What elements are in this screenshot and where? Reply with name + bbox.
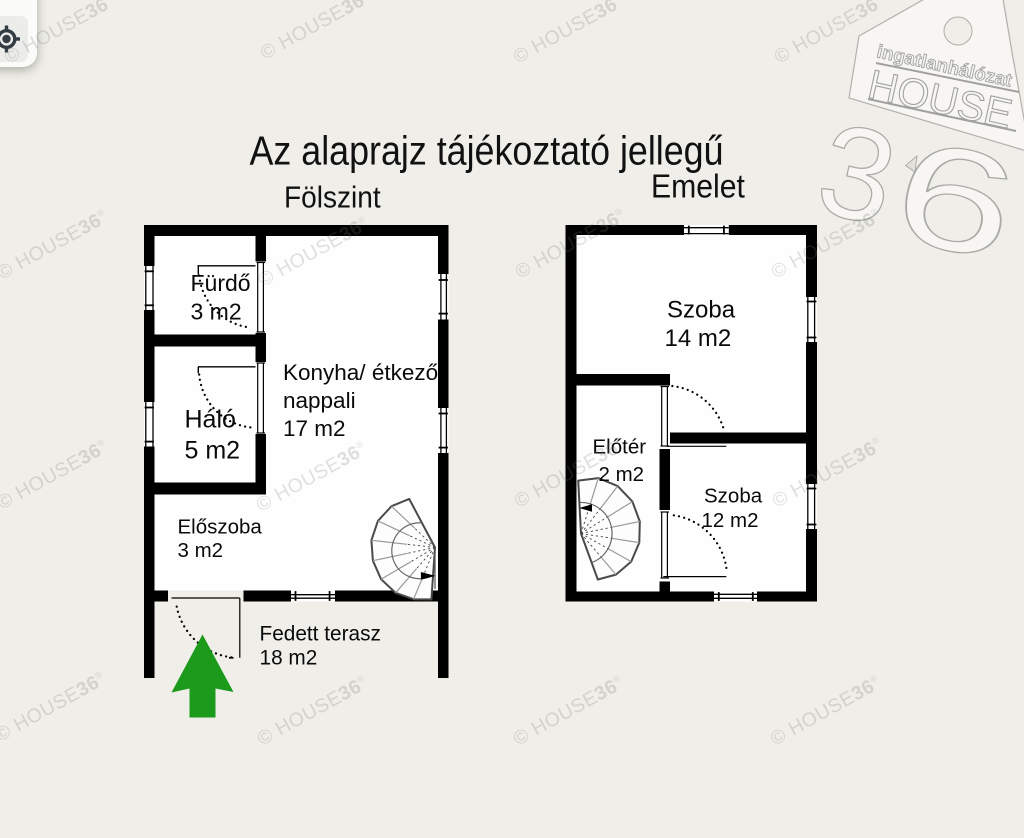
- svg-text:18 m2: 18 m2: [260, 647, 318, 670]
- svg-text:Fürdő: Fürdő: [191, 270, 251, 296]
- svg-text:Előszoba: Előszoba: [178, 516, 263, 539]
- svg-text:Emelet: Emelet: [651, 167, 745, 205]
- svg-text:Konyha/ étkező: Konyha/ étkező: [283, 360, 438, 385]
- svg-text:© HOUSE36®: © HOUSE36®: [257, 0, 375, 64]
- svg-text:17 m2: 17 m2: [283, 416, 346, 441]
- svg-text:Szoba: Szoba: [667, 297, 736, 324]
- svg-text:© HOUSE36®: © HOUSE36®: [767, 672, 885, 751]
- svg-text:3 m2: 3 m2: [178, 539, 224, 562]
- svg-text:Fölszint: Fölszint: [284, 180, 381, 214]
- svg-text:5 m2: 5 m2: [185, 437, 241, 465]
- svg-text:3 m2: 3 m2: [191, 299, 242, 325]
- svg-text:Háló: Háló: [185, 406, 236, 434]
- svg-text:2 m2: 2 m2: [599, 463, 645, 486]
- svg-text:14 m2: 14 m2: [665, 325, 732, 352]
- svg-text:Fedett terasz: Fedett terasz: [260, 623, 381, 646]
- svg-text:© HOUSE36®: © HOUSE36®: [510, 0, 628, 68]
- svg-text:© HOUSE36®: © HOUSE36®: [0, 436, 112, 515]
- svg-text:© HOUSE36®: © HOUSE36®: [1, 0, 119, 68]
- svg-text:© HOUSE36®: © HOUSE36®: [0, 668, 110, 747]
- svg-text:nappali: nappali: [283, 388, 356, 413]
- svg-text:Szoba: Szoba: [704, 485, 763, 508]
- svg-text:© HOUSE36®: © HOUSE36®: [510, 672, 628, 751]
- svg-text:© HOUSE36®: © HOUSE36®: [0, 206, 112, 285]
- svg-text:12 m2: 12 m2: [702, 509, 759, 532]
- svg-text:© HOUSE36®: © HOUSE36®: [254, 672, 372, 751]
